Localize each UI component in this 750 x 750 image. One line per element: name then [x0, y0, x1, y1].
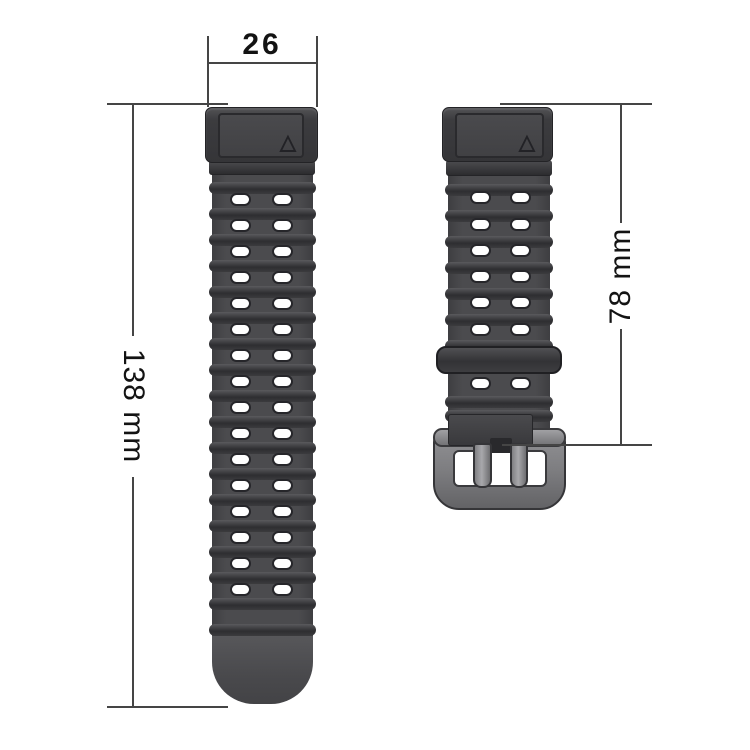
buckle-prong-right	[510, 443, 528, 488]
long-length-dimension-line-lower	[132, 477, 134, 708]
buckle-opening	[453, 450, 547, 487]
triangle-mark-icon: △	[515, 131, 539, 155]
short-length-dimension-label: 78 mm	[601, 176, 641, 376]
short-length-extension-line-top	[500, 103, 652, 105]
long-strap-ridges	[0, 0, 750, 750]
long-length-dimension-label: 138 mm	[113, 306, 153, 506]
short-strap-neck	[446, 160, 552, 176]
short-strap-ridges	[0, 0, 750, 750]
dimension-annotations: 26 138 mm 78 mm	[0, 0, 750, 750]
short-strap-body	[448, 174, 550, 432]
keeper-loop	[436, 346, 562, 374]
short-length-dimension-line-upper	[620, 103, 622, 223]
short-strap-holes	[0, 0, 750, 750]
buckle-prong-left	[473, 443, 492, 488]
triangle-mark-icon: △	[276, 131, 300, 155]
long-length-extension-line-top	[107, 103, 228, 105]
width-dimension-label: 26	[207, 28, 317, 62]
long-strap-rounded-tip	[212, 636, 313, 704]
width-dimension-line	[207, 62, 318, 64]
product-dimension-diagram: △ △ 26 138 mm	[0, 0, 750, 750]
long-strap-body	[212, 172, 313, 638]
width-extension-line-right	[316, 36, 318, 107]
long-strap-holes	[0, 0, 750, 750]
strap-fold-notch	[490, 438, 512, 453]
width-extension-line-left	[207, 36, 209, 107]
short-length-dimension-line-lower	[620, 329, 622, 445]
long-length-dimension-line-upper	[132, 103, 134, 336]
long-length-extension-line-bottom	[107, 706, 228, 708]
